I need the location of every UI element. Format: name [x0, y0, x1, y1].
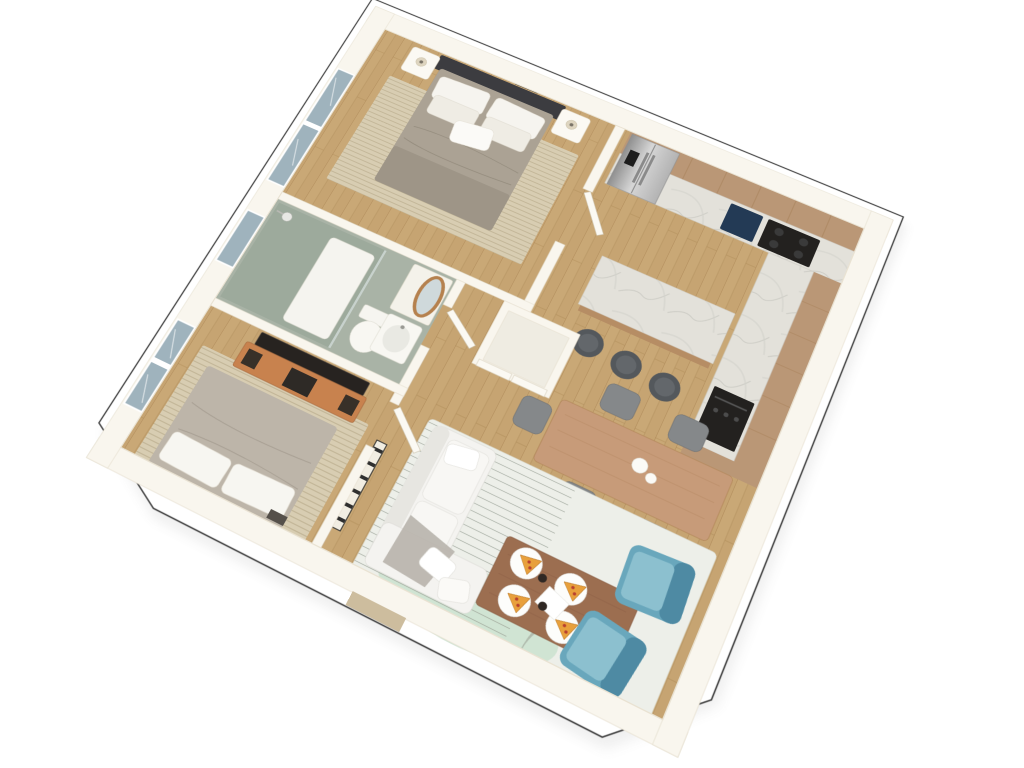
throw-pillow: [437, 577, 471, 605]
floor-plan-stage: [0, 0, 1024, 768]
floor-plan-svg: [95, 12, 886, 748]
plan-projection: [95, 12, 886, 748]
